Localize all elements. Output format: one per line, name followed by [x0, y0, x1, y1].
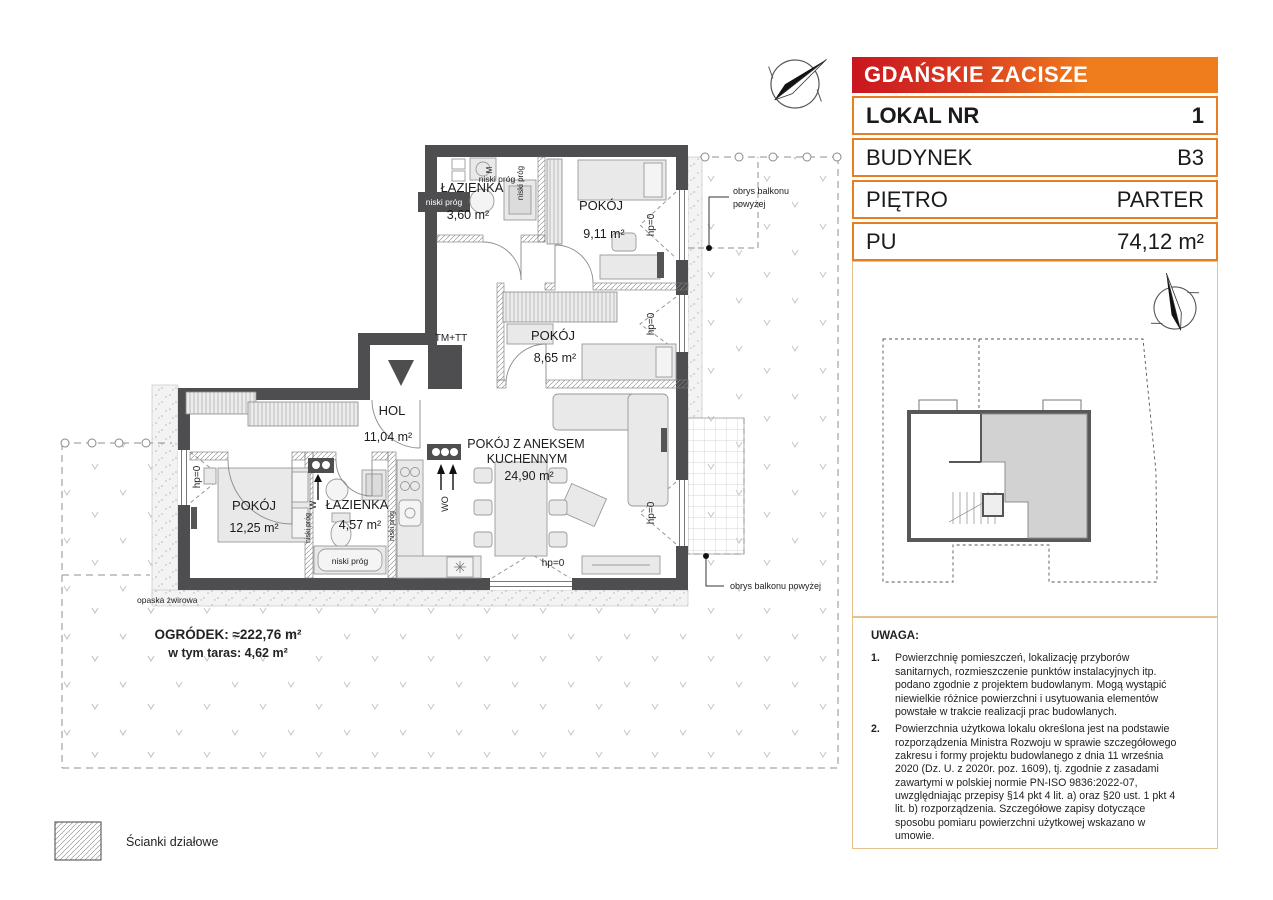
info-label: PIĘTRO [866, 187, 948, 213]
legend-partition-swatch [55, 822, 101, 860]
notes-title: UWAGA: [871, 629, 1179, 643]
info-value: 74,12 m² [1117, 229, 1204, 255]
note-text: Przedstawiona na rzucie aranżacja ma cha… [895, 847, 1179, 849]
niski-prog-label: niski próg [389, 511, 396, 541]
hp0-label: hp=0 [646, 501, 657, 524]
niski-prog-label: niski próg [479, 174, 516, 184]
key-plan-building [909, 400, 1089, 540]
room-label-hall-name: HOL [379, 403, 406, 418]
m-label: M [485, 166, 494, 173]
note-number: 3. [871, 847, 895, 849]
tm-tt-label: TM+TT [435, 333, 468, 344]
note-item: 1. Powierzchnię pomieszczeń, lokalizację… [871, 652, 1179, 719]
info-row-budynek: BUDYNEK B3 [852, 138, 1218, 177]
info-label: BUDYNEK [866, 145, 972, 171]
key-plan [853, 262, 1217, 616]
balcony-outline-label: powyżej [733, 199, 766, 209]
info-value: PARTER [1117, 187, 1204, 213]
terrace [688, 418, 744, 554]
niski-prog-label: niski próg [516, 166, 525, 200]
room-label-room3-name: POKÓJ [232, 498, 276, 513]
key-plan-box [852, 261, 1218, 617]
garden-area-label: w tym taras: 4,62 m² [167, 646, 288, 660]
room-label-room1-name: POKÓJ [579, 198, 623, 213]
room-label-living-name: POKÓJ Z ANEKSEM [467, 436, 584, 451]
notes-box: UWAGA: 1. Powierzchnię pomieszczeń, loka… [852, 617, 1218, 849]
room-label-bathroom2-area: 4,57 m² [339, 518, 381, 532]
balcony-outline-label: obrys balkonu powyżej [730, 581, 821, 591]
note-number: 2. [871, 723, 895, 843]
legend-partition-label: Ścianki działowe [126, 834, 218, 849]
page: ŁAZIENKA 3,60 m² POKÓJ 9,11 m² POKÓJ 8,6… [0, 0, 1273, 900]
hp0-label: hp=0 [192, 465, 203, 488]
room-label-hall-area: 11,04 m² [364, 430, 412, 444]
gravel-label: opaska żwirowa [137, 595, 198, 605]
room-label-living-area: 24,90 m² [504, 469, 553, 483]
room-label-bathroom1-area: 3,60 m² [447, 208, 489, 222]
project-title: GDAŃSKIE ZACISZE [852, 57, 1218, 93]
room-label-room2-name: POKÓJ [531, 328, 575, 343]
info-panel: GDAŃSKIE ZACISZE LOKAL NR 1 BUDYNEK B3 P… [852, 57, 1218, 849]
legend: Ścianki działowe [55, 822, 218, 860]
room-label-room1-area: 9,11 m² [583, 227, 624, 241]
note-number: 1. [871, 652, 895, 719]
hp0-label: hp=0 [646, 213, 657, 236]
room-label-bathroom2-name: ŁAZIENKA [326, 497, 389, 512]
wo-label: WO [440, 496, 450, 512]
info-label: PU [866, 229, 897, 255]
room-label-room2-area: 8,65 m² [534, 351, 576, 365]
info-value: B3 [1177, 145, 1204, 171]
info-row-lokal: LOKAL NR 1 [852, 96, 1218, 135]
niski-prog-label: niski próg [332, 556, 369, 566]
note-text: Powierzchnię pomieszczeń, lokalizację pr… [895, 652, 1179, 719]
garden-area-label: OGRÓDEK: ≈222,76 m² [155, 627, 302, 642]
entrance-arrow-icon [388, 360, 414, 386]
niski-prog-label: niski próg [426, 197, 463, 207]
key-plan-compass-icon [1140, 267, 1207, 337]
w-label: W [308, 500, 318, 509]
hp0-label: hp=0 [542, 558, 565, 569]
niski-prog-label: niski próg [305, 513, 312, 543]
info-row-pu: PU 74,12 m² [852, 222, 1218, 261]
hp0-label: hp=0 [646, 312, 657, 335]
note-text: Powierzchnia użytkowa lokalu określona j… [895, 723, 1179, 843]
floor-plan: ŁAZIENKA 3,60 m² POKÓJ 9,11 m² POKÓJ 8,6… [0, 0, 845, 900]
info-value: 1 [1192, 103, 1204, 129]
balcony-outline-label: obrys balkonu [733, 186, 789, 196]
info-row-pietro: PIĘTRO PARTER [852, 180, 1218, 219]
room-label-living-name2: KUCHENNYM [487, 452, 568, 466]
note-item: 3. Przedstawiona na rzucie aranżacja ma … [871, 847, 1179, 849]
key-plan-elevator [983, 494, 1003, 516]
note-item: 2. Powierzchnia użytkowa lokalu określon… [871, 723, 1179, 843]
compass-icon [756, 36, 845, 124]
room-label-room3-area: 12,25 m² [229, 521, 278, 535]
info-label: LOKAL NR [866, 103, 979, 129]
